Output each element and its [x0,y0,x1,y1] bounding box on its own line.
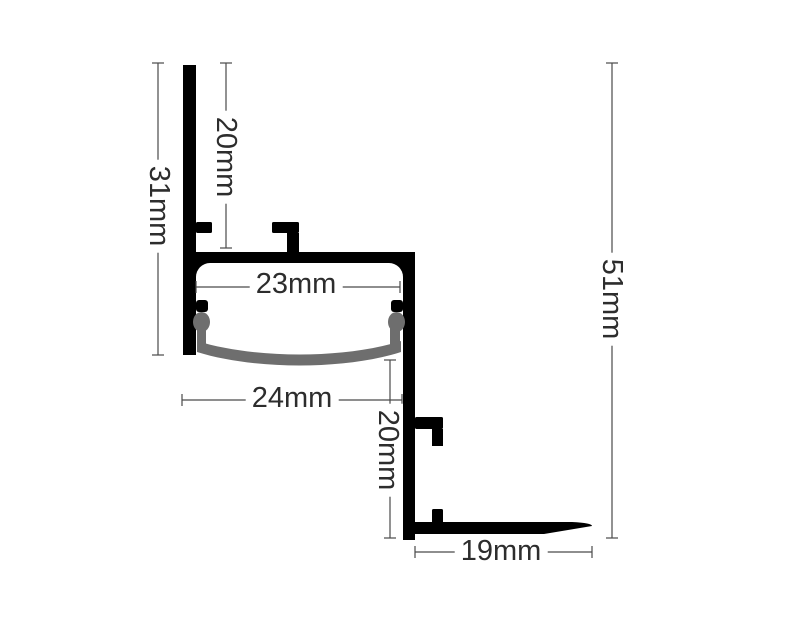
profile-cross-section-drawing [0,0,796,634]
bottom-flange-tab [432,509,443,524]
lower-hook-bar [415,417,443,429]
dim-label-overall-height: 51mm [595,253,627,346]
left-wall [183,65,196,355]
top-hook-bar [272,222,299,233]
profile-drawing-canvas: 31mm 20mm 23mm 24mm 20mm 51mm 19mm [0,0,796,634]
dim-label-outer-width: 24mm [246,383,339,415]
left-retaining-lip [196,300,208,312]
right-wall [403,252,415,540]
dim-label-left-wall-height: 31mm [142,160,174,253]
top-hook-leg [287,233,299,253]
dim-label-inner-width: 23mm [250,269,343,301]
lower-hook-leg [432,429,443,446]
dim-label-lower-drop: 20mm [371,404,403,497]
right-retaining-lip [391,300,403,312]
left-mounting-tab [196,222,212,233]
dim-label-bottom-flange-width: 19mm [455,536,548,568]
dim-label-upper-channel-depth: 20mm [209,111,241,204]
